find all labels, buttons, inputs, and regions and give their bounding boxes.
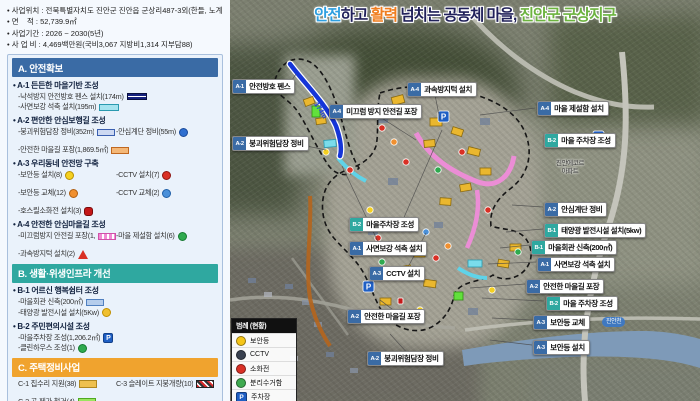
map-label: A-1사면보강 석축 설치 (537, 257, 615, 272)
map-label-text: 마을 주차장 조성 (563, 298, 613, 309)
wall-swatch (97, 129, 115, 136)
map-label-text: 안전방호 펜스 (249, 81, 290, 92)
work-item-label: -사면보강 석축 설치(195m) (18, 102, 96, 113)
project-info-item: • 사 업 비 : 4,469백만원(국비3,067 지방비1,314 지부담8… (7, 39, 223, 50)
group-title: • B-1 어르신 행복쉼터 조성 (13, 285, 218, 296)
map-label: B-1태양광 발전시설 설치(5kw) (544, 223, 646, 238)
map-label: A-4과속방지턱 설치 (407, 82, 477, 97)
map-label-text: 사면보강 석축 설치 (554, 259, 610, 270)
legend-label: 보안등 (250, 336, 269, 346)
work-item-label: C-2 공·폐가 철거(4) (18, 397, 75, 401)
legend-item: 보안등 (232, 333, 296, 347)
work-item-label: -마을주차장 조성(1,206.2㎡) (18, 333, 100, 344)
map-label-badge: A-4 (538, 102, 551, 115)
light-replace-icon-swatch (69, 189, 78, 198)
section-header-B: B. 생활·위생인프라 개선 (12, 264, 218, 283)
slate-swatch (196, 380, 214, 388)
sections-container: A. 안전확보• A-1 든든한 마을기반 조성-낙석방지 안전방호 펜스 설치… (7, 54, 223, 401)
project-info-item: • 사업기간 : 2026 ~ 2030(5년) (7, 28, 223, 39)
work-item-label: -안심계단 정비(55m) (116, 127, 176, 138)
sidebar: • 사업위치 : 전북특별자치도 진안군 진안읍 군상리487-3외(한들, 노… (0, 0, 230, 401)
cctv-icon (236, 350, 246, 360)
work-item-label: -마을 제설함 설치(6) (116, 231, 175, 242)
map-label-text: 붕괴위험담장 정비 (249, 138, 303, 149)
work-item-label: -마을회관 신축(200㎡) (18, 297, 83, 308)
masonry-swatch (99, 104, 119, 111)
work-item-label: -태양광 발전시설 설치(5Kw) (18, 308, 99, 319)
map-label-badge: A-1 (538, 258, 551, 271)
work-item: -CCTV 설치(7) (116, 170, 214, 181)
work-item: -태양광 발전시설 설치(5Kw) (18, 308, 218, 319)
solar-icon-swatch (102, 308, 111, 317)
parking-icon: P (236, 392, 247, 401)
map-label-badge: A-3 (370, 267, 383, 280)
project-info-item: • 면 적 : 52,739.9㎡ (7, 16, 223, 27)
map-label: B-2마을 주차장 조성 (544, 133, 616, 148)
road-orange-swatch (111, 147, 129, 154)
legend-label: 소화전 (250, 364, 269, 374)
plan-poster: • 사업위치 : 전북특별자치도 진안군 진안읍 군상리487-3외(한들, 노… (0, 0, 700, 401)
work-item: -과속방지턱 설치(2) (18, 249, 218, 260)
map-label-badge: B-2 (350, 218, 363, 231)
map-label: A-2붕괴위험담장 정비 (232, 136, 309, 151)
legend-item: CCTV (232, 347, 296, 361)
speedbump-icon-swatch (78, 250, 88, 259)
map-label: A-3보안등 설치 (533, 340, 590, 355)
item-group: -미끄럼방지 안전길 포장(1,320㎡)-마을 제설함 설치(6)-과속방지턱… (18, 231, 218, 260)
legend-items: 보안등CCTV소화전분리수거함P주차장 (232, 333, 296, 401)
hall-swatch (86, 299, 104, 306)
cctv-replace-icon-swatch (162, 189, 171, 198)
map-title-part: 진안군 군상지구 (520, 7, 616, 24)
map-label-text: CCTV 설치 (386, 268, 420, 279)
work-item: -호스릴소화전 설치(3) (18, 206, 218, 217)
map-label-text: 붕괴위험담장 정비 (384, 353, 438, 364)
security-light-icon (236, 336, 246, 346)
project-info-list: • 사업위치 : 전북특별자치도 진안군 진안읍 군상리487-3외(한들, 노… (7, 5, 223, 50)
light-new-icon-swatch (65, 171, 74, 180)
map-label: A-3CCTV 설치 (369, 266, 425, 281)
work-item: -보안등 교체(12) (18, 188, 116, 199)
fire-hydrant-icon (236, 364, 246, 374)
map-title-part: 넘치는 공동체 마을, (397, 7, 520, 24)
map-label: B-2마을 주차장 조성 (546, 296, 618, 311)
map-area: P P P 174m 안전하고 활력 넘치는 공동체 마 (230, 0, 700, 401)
recycle-bin-icon (236, 378, 246, 388)
item-group: -낙석방지 안전방호 펜스 설치(174m)-사면보강 석축 설치(195m) (18, 92, 218, 113)
group-title: • A-2 편안한 안심보행길 조성 (13, 115, 218, 126)
map-label-badge: A-3 (534, 316, 547, 329)
map-label: A-1사면보강 석축 설치 (349, 241, 427, 256)
work-item: C-2 공·폐가 철거(4) (18, 397, 218, 401)
map-title: 안전하고 활력 넘치는 공동체 마을, 진안군 군상지구 (230, 3, 700, 25)
map-label-badge: B-1 (545, 224, 558, 237)
map-label: A-4미끄럼 방지 안전길 포장 (329, 104, 422, 119)
map-label-badge: B-1 (532, 241, 545, 254)
stairs-icon-swatch (179, 128, 188, 137)
map-label-badge: B-2 (545, 134, 558, 147)
repair-swatch (79, 380, 97, 388)
legend-label: 주차장 (251, 392, 270, 401)
map-label-text: 마을회관 신축(200㎡) (548, 242, 612, 253)
map-title-part: 하고 (341, 7, 371, 24)
snowbox-icon-swatch (178, 232, 187, 241)
map-label-badge: A-1 (350, 242, 363, 255)
work-item: -CCTV 교체(2) (116, 188, 214, 199)
map-label-badge: A-2 (527, 280, 540, 293)
work-item: -미끄럼방지 안전길 포장(1,320㎡) (18, 231, 116, 242)
group-title: • B-2 주민편의시설 조성 (13, 321, 218, 332)
map-label-badge: A-4 (330, 105, 343, 118)
legend-label: CCTV (250, 351, 269, 358)
group-title: • A-1 든든한 마을기반 조성 (13, 80, 218, 91)
cleanhouse-icon-swatch (78, 344, 87, 353)
work-item: -보안등 설치(8) (18, 170, 116, 181)
map-label-text: 태양광 발전시설 설치(5kw) (561, 225, 641, 236)
map-label: B-2마을주차장 조성 (349, 217, 419, 232)
item-group: -마을주차장 조성(1,206.2㎡)P-클린하우스 조성(1) (18, 333, 218, 354)
map-label-text: 안전한 마을길 포장 (543, 281, 599, 292)
map-label-text: 마을 주차장 조성 (561, 135, 611, 146)
legend-item: P주차장 (232, 389, 296, 401)
section-header-C: C. 주택정비사업 (12, 358, 218, 377)
map-legend: 범례 (현황) 보안등CCTV소화전분리수거함P주차장 (231, 318, 297, 401)
map-label: B-1마을회관 신축(200㎡) (531, 240, 617, 255)
map-label-badge: A-1 (233, 80, 246, 93)
antislip-swatch (98, 233, 116, 240)
section-header-A: A. 안전확보 (12, 58, 218, 77)
work-item-label: -호스릴소화전 설치(3) (18, 206, 81, 217)
map-label-text: 미끄럼 방지 안전길 포장 (346, 106, 417, 117)
map-label-badge: A-3 (534, 341, 547, 354)
work-item: -마을 제설함 설치(6) (116, 231, 214, 242)
map-label-text: 안심계단 정비 (561, 204, 602, 215)
legend-label: 분리수거함 (250, 378, 282, 388)
map-label-text: 마을 제설함 설치 (554, 103, 604, 114)
work-item: -낙석방지 안전방호 펜스 설치(174m) (18, 92, 218, 103)
work-item: -붕괴위험담장 정비(352m) (18, 127, 116, 138)
item-group: -붕괴위험담장 정비(352m)-안심계단 정비(55m)-안전한 마을길 포장… (18, 127, 218, 156)
map-label: A-2안심계단 정비 (544, 202, 607, 217)
map-label-text: 과속방지턱 설치 (424, 84, 472, 95)
group-title: • A-3 우리동네 안전망 구축 (13, 158, 218, 169)
section-B: B. 생활·위생인프라 개선• B-1 어르신 행복쉼터 조성-마을회관 신축(… (12, 264, 218, 354)
map-label-badge: A-2 (368, 352, 381, 365)
work-item: C-1 집수리 지원(38) (18, 379, 116, 390)
section-A: A. 안전확보• A-1 든든한 마을기반 조성-낙석방지 안전방호 펜스 설치… (12, 58, 218, 260)
work-item-label: -CCTV 교체(2) (116, 188, 159, 199)
group-title: • A-4 안전한 안심마을길 조성 (13, 219, 218, 230)
map-title-part: 안전 (314, 7, 341, 24)
work-item: -클린하우스 조성(1) (18, 343, 218, 354)
map-title-part: 활력 (371, 7, 398, 24)
map-label-badge: A-4 (408, 83, 421, 96)
map-labels-layer: A-1안전방호 펜스A-2붕괴위험담장 정비A-4미끄럼 방지 안전길 포장A-… (230, 0, 700, 401)
map-label-text: 보안등 교체 (550, 317, 585, 328)
map-label-badge: A-2 (233, 137, 246, 150)
map-label-text: 보안등 설치 (550, 342, 585, 353)
work-item-label: C-1 집수리 지원(38) (18, 379, 76, 390)
map-label-badge: A-2 (545, 203, 558, 216)
work-item: -안심계단 정비(55m) (116, 127, 214, 138)
work-item-label: -붕괴위험담장 정비(352m) (18, 127, 94, 138)
work-item-label: -미끄럼방지 안전길 포장(1,320㎡) (18, 231, 95, 242)
work-item-label: -보안등 설치(8) (18, 170, 62, 181)
map-label-text: 사면보강 석축 설치 (366, 243, 422, 254)
cctv-new-icon-swatch (162, 171, 171, 180)
work-item: -마을주차장 조성(1,206.2㎡)P (18, 333, 218, 344)
legend-item: 분리수거함 (232, 375, 296, 389)
work-item-label: -클린하우스 조성(1) (18, 343, 75, 354)
work-item-label: C-3 슬레이트 지붕개량(10) (116, 379, 193, 390)
map-label: A-3보안등 교체 (533, 315, 590, 330)
item-group: C-1 집수리 지원(38)C-3 슬레이트 지붕개량(10)C-2 공·폐가 … (18, 379, 218, 401)
map-label-text: 안전한 마을길 포장 (364, 311, 420, 322)
project-info-item: • 사업위치 : 전북특별자치도 진안군 진안읍 군상리487-3외(한들, 노… (7, 5, 223, 16)
legend-item: 소화전 (232, 361, 296, 375)
work-item: -안전한 마을길 포장(1,869.5㎡) (18, 145, 218, 156)
map-label: A-2붕괴위험담장 정비 (367, 351, 444, 366)
fence-swatch (127, 93, 147, 100)
work-item: -마을회관 신축(200㎡) (18, 297, 218, 308)
map-label-badge: A-2 (348, 310, 361, 323)
legend-title: 범례 (현황) (232, 319, 296, 333)
parking-icon-swatch: P (103, 333, 113, 343)
map-label-badge: B-2 (547, 297, 560, 310)
work-item-label: -낙석방지 안전방호 펜스 설치(174m) (18, 92, 124, 103)
item-group: -마을회관 신축(200㎡)-태양광 발전시설 설치(5Kw) (18, 297, 218, 318)
map-label: A-2안전한 마을길 포장 (526, 279, 604, 294)
work-item: -사면보강 석축 설치(195m) (18, 102, 218, 113)
section-C: C. 주택정비사업C-1 집수리 지원(38)C-3 슬레이트 지붕개량(10)… (12, 358, 218, 401)
work-item-label: -보안등 교체(12) (18, 188, 66, 199)
map-label: A-4마을 제설함 설치 (537, 101, 609, 116)
work-item: C-3 슬레이트 지붕개량(10) (116, 379, 214, 390)
map-label: A-2안전한 마을길 포장 (347, 309, 425, 324)
work-item-label: -CCTV 설치(7) (116, 170, 159, 181)
map-label: A-1안전방호 펜스 (232, 79, 295, 94)
hydrant-icon-swatch (84, 207, 93, 216)
work-item-label: -과속방지턱 설치(2) (18, 249, 75, 260)
work-item-label: -안전한 마을길 포장(1,869.5㎡) (18, 145, 108, 156)
item-group: -보안등 설치(8)-CCTV 설치(7)-보안등 교체(12)-CCTV 교체… (18, 170, 218, 217)
map-label-text: 마을주차장 조성 (366, 219, 414, 230)
